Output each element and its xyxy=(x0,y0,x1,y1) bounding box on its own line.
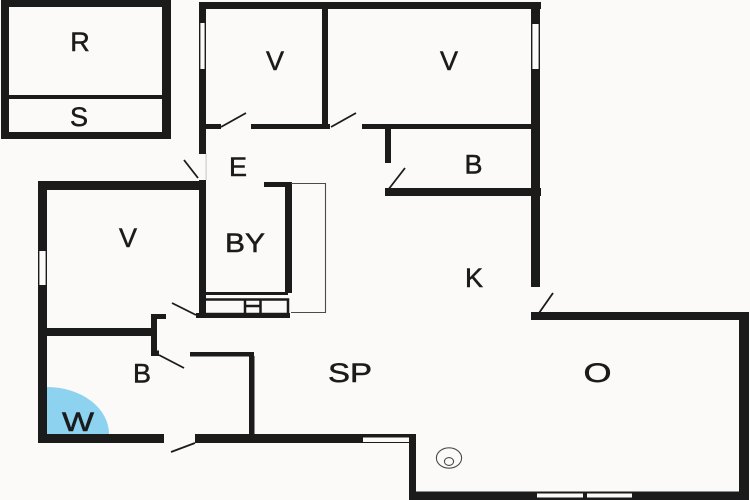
svg-text:B: B xyxy=(464,150,482,180)
svg-text:R: R xyxy=(70,27,90,57)
svg-text:V: V xyxy=(266,46,284,76)
svg-text:W: W xyxy=(62,407,95,437)
svg-text:V: V xyxy=(440,46,458,76)
svg-text:B: B xyxy=(133,359,151,389)
svg-text:BY: BY xyxy=(225,228,265,258)
svg-text:SP: SP xyxy=(328,358,372,388)
svg-text:S: S xyxy=(70,102,88,132)
svg-text:K: K xyxy=(465,263,483,293)
svg-text:O: O xyxy=(584,358,612,388)
svg-text:V: V xyxy=(119,223,137,253)
svg-text:E: E xyxy=(229,152,247,182)
